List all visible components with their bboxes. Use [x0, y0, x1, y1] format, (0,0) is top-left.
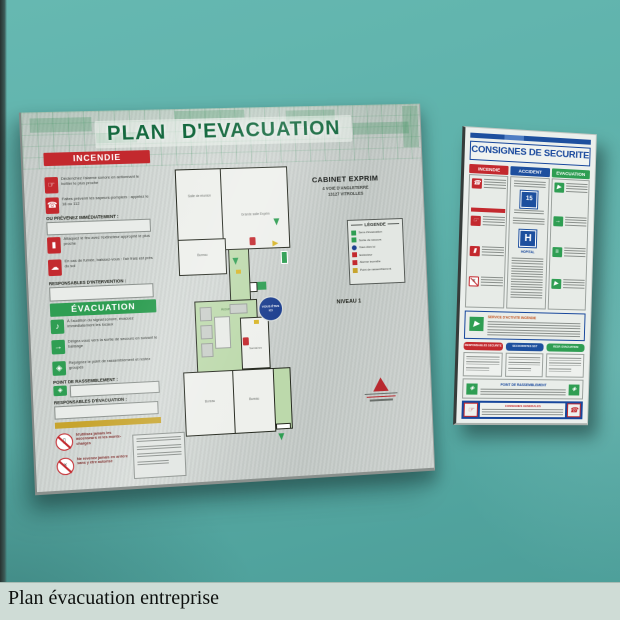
assembly-point-icon: ◈	[53, 385, 67, 396]
caption-bar: Plan évacuation entreprise	[0, 582, 620, 620]
hospital-icon: H	[519, 230, 536, 248]
floor-plan: Salle de réunion Grande salle Exprim Bur…	[172, 164, 311, 457]
alarm-box-marker-icon	[236, 270, 241, 274]
extinguisher-icon: ▮	[47, 237, 61, 254]
red-subheading-bar	[471, 207, 505, 213]
running-man-icon: ▶	[551, 279, 561, 289]
blurred-text-lines	[466, 361, 499, 365]
furniture	[200, 325, 213, 340]
smoke-icon: ☁	[48, 259, 62, 276]
responsible-writein-boxes	[463, 352, 585, 378]
level-label: NIVEAU 1	[337, 298, 362, 305]
emergency-exit-icon	[351, 238, 356, 243]
pill-responsables-securite: RESPONSABLES SECURITE	[464, 342, 503, 351]
room-office-3: Bureau	[232, 368, 276, 434]
evac-stairs-row: ≡	[552, 247, 585, 258]
responsible-pills: RESPONSABLES SECURITE SECOURISTES SST RE…	[464, 342, 585, 352]
general-instructions-band: ☞ CONSIGNES GENERALES ☎	[461, 401, 582, 420]
blurred-text-lines	[137, 459, 168, 465]
alarm-button-icon: ☞	[44, 177, 58, 194]
fire-extinguisher-row: ▮	[470, 246, 504, 257]
evac-direction-row: →	[553, 216, 586, 227]
writein-box	[505, 353, 544, 378]
instructions-column: INCENDIE ☞ Déclenchez l'alarme sonore en…	[42, 109, 182, 491]
legend-item: Vous êtes ici	[352, 243, 400, 250]
blurred-text-lines	[514, 209, 544, 214]
no-return-rule: × Ne revenez jamais en arrière sans y êt…	[56, 454, 132, 476]
evacuation-arrow-icon	[273, 218, 279, 225]
hospital-label: HOPITAL	[509, 249, 546, 254]
exit-sign-icon	[281, 251, 288, 264]
stairs-icon: ≡	[552, 247, 562, 257]
incendie-header: INCENDIE	[43, 150, 150, 166]
assembly-point-band: ◈ POINT DE RASSEMBLEMENT ◈	[462, 378, 584, 399]
fire-call-row: ☎	[472, 178, 506, 190]
siren-icon: ♪	[50, 319, 64, 334]
exit-arrow-icon: →	[51, 340, 65, 355]
furniture	[200, 307, 213, 322]
blurred-text-lines	[466, 356, 499, 360]
evac-assembly-row: ▶	[551, 279, 584, 290]
alarm-button-icon: ☞	[471, 216, 481, 227]
fire-service-title: SERVICE D'ACTIVITE INCENDIE	[488, 315, 536, 320]
exit-door-icon: ▶	[554, 182, 564, 192]
evacuation-plan-board: PLAN D'EVACUATION INCENDIE ☞ Déclenchez …	[19, 104, 435, 496]
fire-prohibition-row: ×	[469, 276, 504, 287]
blurred-text-lines	[137, 444, 182, 451]
legend-dash	[351, 224, 363, 225]
incendie-step-extinguisher: ▮ Attaquez le feu avec l'extincteur appr…	[47, 234, 154, 254]
alarm-hand-icon: ☞	[463, 403, 478, 417]
caption-text: Plan évacuation entreprise	[0, 583, 620, 610]
blurred-text-lines	[137, 451, 182, 458]
blurred-text-lines	[563, 279, 585, 290]
blurred-text-lines	[565, 217, 587, 228]
evacuation-arrow-icon	[278, 433, 284, 440]
no-elevator-icon: ▯	[55, 433, 73, 451]
assembly-legend-icon	[353, 268, 358, 273]
extinguisher-marker-icon	[243, 337, 249, 345]
reception-desk	[214, 316, 231, 349]
fire-service-box: ▶ SERVICE D'ACTIVITE INCENDIE	[464, 310, 586, 341]
assembly-point-title: POINT DE RASSEMBLEMENT	[481, 383, 566, 388]
pill-responsables-evacuation: RESP. EVACUATION	[547, 343, 585, 352]
blurred-text-lines	[508, 356, 540, 360]
corridor	[228, 247, 251, 306]
phone-icon: ☎	[567, 403, 581, 417]
safety-instructions-board: CONSIGNES DE SECURITE INCENDIE ☎ ☞ ▮ × A…	[453, 126, 597, 425]
exit-door	[276, 423, 291, 430]
blurred-text-lines	[514, 180, 546, 190]
blurred-text-lines	[564, 247, 586, 258]
blurred-text-lines	[480, 388, 565, 395]
notes-box	[132, 432, 186, 479]
blurred-text-lines	[481, 277, 503, 288]
blurred-text-lines	[513, 217, 545, 226]
phone-icon: ☎	[472, 178, 482, 189]
furniture	[229, 303, 247, 314]
blurred-text-lines	[549, 357, 581, 360]
maker-logo	[358, 376, 403, 402]
assembly-point-icon: ◈	[466, 383, 477, 394]
logo-triangle	[373, 377, 389, 392]
blurred-text-lines	[566, 183, 588, 194]
extinguisher-marker-icon	[249, 237, 255, 245]
writein-box	[546, 353, 584, 377]
fire-alarm-row: ☞	[471, 216, 505, 228]
exit-sign-icon	[257, 282, 266, 290]
incendie-step-smoke: ☁ En cas de fumée, baissez-vous : l'air …	[48, 256, 155, 276]
blurred-text-lines	[466, 367, 489, 370]
furniture	[201, 343, 214, 358]
blurred-text-lines	[482, 409, 563, 416]
column-evacuation: EVACUATION ▶ → ≡ ▶	[547, 168, 590, 310]
blurred-text-lines	[136, 436, 181, 443]
extinguisher-icon: ▮	[470, 246, 480, 256]
prohibition-icon: ×	[469, 276, 479, 286]
blurred-text-lines	[549, 368, 571, 371]
legend-item: Point de rassemblement	[353, 266, 401, 273]
blurred-text-lines	[508, 362, 540, 365]
logo-text-line	[370, 398, 393, 401]
legend-item: Sens d'évacuation	[351, 229, 399, 236]
general-instructions-title: CONSIGNES GENERALES	[482, 404, 563, 408]
evacuation-pictogram-icon: ▶	[469, 317, 484, 331]
incendie-step-alarm: ☞ Déclenchez l'alarme sonore en actionna…	[44, 174, 151, 193]
assembly-point-icon: ◈	[569, 384, 580, 395]
general-instructions-center: CONSIGNES GENERALES	[480, 403, 566, 417]
evacuation-step-signal: ♪ À l'audition du signal sonore, évacuez…	[50, 315, 157, 334]
exit-arrow-icon: →	[553, 216, 563, 226]
column-incendie-body: ☎ ☞ ▮ ×	[465, 174, 509, 308]
evacuation-step-exit: → Dirigez-vous vers la sortie de secours…	[51, 335, 158, 354]
column-evacuation-body: ▶ → ≡ ▶	[547, 178, 589, 310]
you-are-here-marker: VOUS ÊTES ICI	[258, 296, 284, 322]
legend-title: LÉGENDE	[364, 222, 386, 228]
no-return-icon: ×	[56, 457, 74, 475]
assembly-point-icon: ◈	[52, 361, 66, 376]
legend-item: Sortie de secours	[351, 236, 399, 243]
alarm-legend-icon	[352, 260, 357, 265]
blurred-text-lines	[487, 321, 580, 338]
legend-title-row: LÉGENDE	[351, 221, 399, 228]
alarm-box-marker-icon	[254, 320, 259, 324]
wall-corner-shadow	[0, 0, 7, 620]
room-meeting: Salle de réunion	[175, 168, 225, 242]
blurred-text-lines	[549, 363, 581, 366]
room-office-2: Bureau	[183, 370, 237, 437]
room-office-1: Bureau	[178, 238, 227, 276]
alarm-arrow-icon	[272, 240, 278, 246]
photo-frame: PLAN D'EVACUATION INCENDIE ☞ Déclenchez …	[0, 0, 620, 620]
column-incendie: INCENDIE ☎ ☞ ▮ ×	[465, 164, 509, 309]
you-are-here-icon	[352, 245, 357, 250]
evacuation-direction-icon	[351, 230, 356, 235]
evacuation-step-assembly: ◈ Rejoignez le point de rassemblement et…	[52, 357, 159, 376]
samu-15-icon: 15	[521, 191, 538, 209]
site-info: CABINET EXPRIM 4 VOIE D'ANGLETERRE 13127…	[292, 173, 398, 198]
no-elevator-rule: ▯ N'utilisez jamais les ascenseurs ni le…	[55, 430, 131, 452]
writein-box	[463, 352, 503, 377]
phone-icon: ☎	[45, 197, 59, 214]
security-title: CONSIGNES DE SECURITE	[470, 141, 591, 167]
evacuation-arrow-icon	[232, 258, 238, 265]
blurred-text-lines	[508, 368, 531, 371]
responsables-writein-box	[49, 283, 154, 301]
incendie-step-call: ☎ Faites prévenir les sapeurs-pompiers :…	[45, 194, 152, 214]
column-accident-body: 15 H HOPITAL	[506, 176, 549, 309]
legend-item: Extincteur	[352, 251, 400, 258]
blurred-text-lines	[484, 179, 506, 190]
blurred-text-lines	[482, 246, 504, 257]
assembly-point-center: POINT DE RASSEMBLEMENT	[480, 383, 566, 395]
pill-secouristes: SECOURISTES SST	[505, 343, 544, 352]
legend-item: Alarme incendie	[352, 258, 400, 265]
instruction-columns: INCENDIE ☎ ☞ ▮ × ACCIDENT 15 H HOPITA	[465, 164, 590, 311]
blurred-text-lines	[511, 257, 544, 298]
extinguisher-legend-icon	[352, 253, 357, 258]
legend-box: LÉGENDE Sens d'évacuation Sortie de seco…	[347, 218, 406, 285]
evac-exit-row: ▶	[554, 182, 587, 194]
column-accident: ACCIDENT 15 H HOPITAL	[506, 166, 549, 309]
blurred-text-lines	[483, 216, 505, 227]
legend-dash	[388, 223, 399, 224]
evacuation-header: ÉVACUATION	[50, 299, 157, 317]
